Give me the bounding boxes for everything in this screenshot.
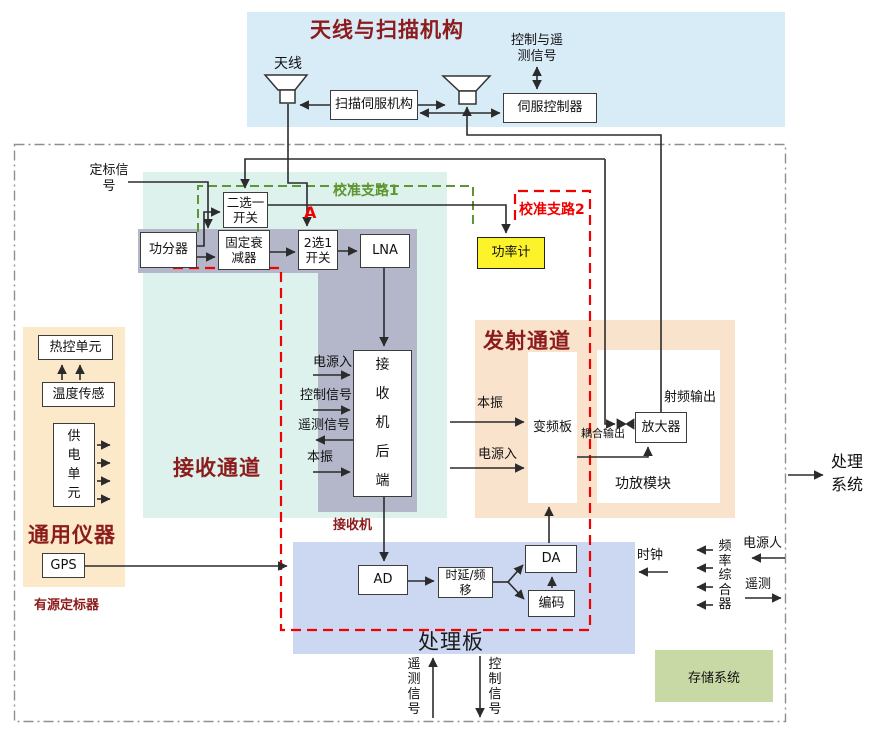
fixed-attenuator-label: 固定衰 减器	[225, 235, 263, 265]
instruments-title: 通用仪器	[28, 522, 116, 548]
active-calibrator-label: 有源定标器	[34, 598, 99, 614]
cal-branch2-label: 校准支路2	[519, 202, 585, 220]
power-supply-box: 供 电 单 元	[53, 423, 95, 507]
switch-2to1-box: 2选1 开关	[298, 230, 338, 270]
telemetry-signal-bottom-label: 遥 测 信 号	[406, 657, 422, 717]
cal-branch1-label: 校准支路1	[333, 183, 399, 201]
two-select-switch-box: 二选一 开关	[223, 192, 268, 228]
receiver-backend-label: 接 收 机 后 端	[376, 351, 390, 496]
receive-channel-title: 接收通道	[173, 455, 261, 481]
ad-label: AD	[374, 572, 393, 588]
transmit-channel-title: 发射通道	[483, 328, 571, 354]
servo-controller-box: 伺服控制器	[503, 93, 597, 123]
receiver-backend-box: 接 收 机 后 端	[353, 350, 412, 497]
amplifier-label: 放大器	[641, 420, 680, 436]
cal-signal-label: 定标信 号	[88, 163, 130, 196]
power-divider-box: 功分器	[140, 232, 197, 268]
switch-2to1-label: 2选1 开关	[304, 235, 332, 265]
control-signal-bottom-label: 控 制 信 号	[487, 657, 503, 717]
converter-board-box: 变频板	[528, 352, 577, 503]
converter-board-label: 变频板	[533, 420, 572, 436]
ad-box: AD	[358, 565, 408, 595]
rf-out-label: 射频输出	[664, 390, 716, 406]
temp-sensor-label: 温度传感	[52, 387, 104, 403]
gps-label: GPS	[50, 558, 76, 574]
da-box: DA	[525, 545, 577, 573]
coupled-out-label: 耦合输出	[581, 427, 625, 441]
backend-in-control-label: 控制信号	[298, 388, 352, 404]
clock-label: 时钟	[637, 548, 663, 564]
encoder-box: 编码	[528, 590, 575, 617]
right-power-in-label: 电源人	[743, 536, 782, 552]
transmit-lo-label: 本振	[477, 396, 503, 412]
amplifier-box: 放大器	[635, 412, 687, 443]
transmit-power-label: 电源入	[478, 447, 517, 463]
temp-sensor-box: 温度传感	[42, 382, 115, 407]
delay-shift-box: 时延/频 移	[438, 567, 493, 598]
backend-in-lo-label: 本振	[300, 450, 340, 466]
storage-system-box: 存储系统	[655, 650, 773, 702]
lna-box: LNA	[360, 234, 410, 268]
processing-board-title: 处理板	[418, 629, 484, 655]
ctrl-telemetry-label: 控制与遥 测信号	[506, 33, 568, 66]
antenna-label: 天线	[274, 56, 302, 74]
thermal-unit-box: 热控单元	[38, 335, 113, 360]
scan-servo-label: 扫描伺服机构	[335, 97, 413, 113]
servo-controller-label: 伺服控制器	[517, 100, 582, 116]
power-divider-label: 功分器	[149, 242, 188, 258]
right-telemetry-label: 遥测	[745, 577, 771, 593]
lna-label: LNA	[372, 243, 398, 259]
fixed-attenuator-box: 固定衰 减器	[218, 230, 270, 270]
block-diagram: 变频板 存储系统	[0, 0, 884, 732]
delay-shift-label: 时延/频 移	[445, 568, 485, 597]
freq-synth-label: 频 率 综 合 器	[717, 540, 733, 613]
power-meter-box: 功率计	[477, 237, 545, 269]
backend-out-telemetry-label: 遥测信号	[296, 418, 350, 434]
receiver-label: 接收机	[333, 518, 372, 534]
two-select-switch-label: 二选一 开关	[227, 195, 265, 225]
pa-module-label: 功放模块	[615, 476, 671, 494]
storage-system-label: 存储系统	[688, 667, 740, 686]
scan-servo-box: 扫描伺服机构	[330, 90, 418, 120]
power-meter-label: 功率计	[491, 245, 530, 261]
gps-box: GPS	[42, 553, 85, 578]
processing-system-label: 处理 系统	[831, 450, 863, 496]
thermal-unit-label: 热控单元	[49, 340, 101, 356]
da-label: DA	[542, 551, 561, 567]
backend-in-power-label: 电源入	[300, 355, 352, 371]
encoder-label: 编码	[538, 596, 564, 612]
point-a-label: A	[304, 203, 316, 223]
antenna-section-title: 天线与扫描机构	[310, 17, 464, 43]
power-supply-label: 供 电 单 元	[67, 427, 80, 503]
